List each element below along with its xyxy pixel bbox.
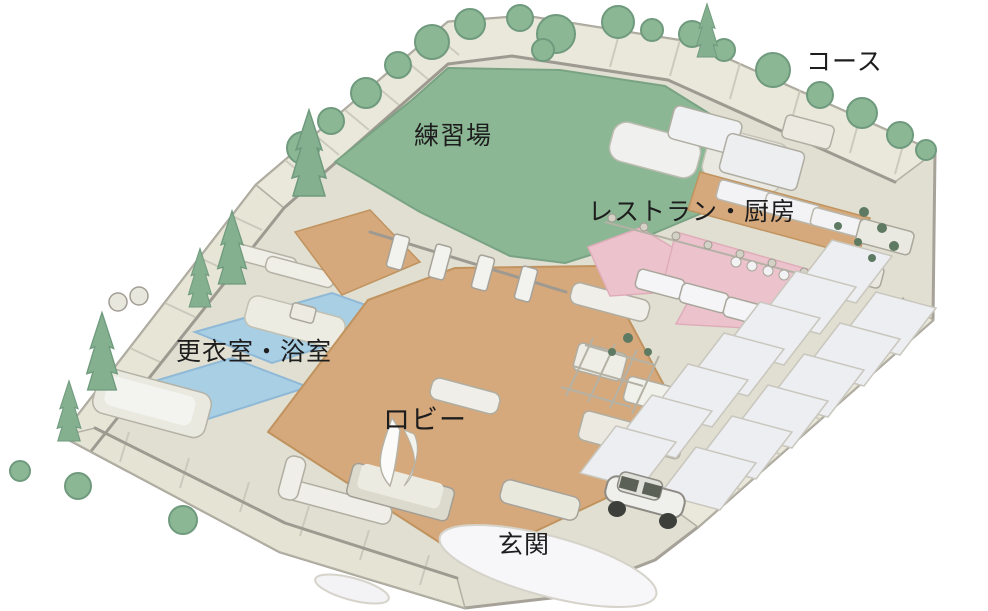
- label-course: コース: [806, 48, 883, 76]
- label-practice-range: 練習場: [414, 122, 492, 150]
- label-lobby: ロビー: [383, 406, 467, 436]
- facility-illustration: [0, 0, 988, 611]
- label-locker-bath: 更衣室・浴室: [176, 338, 332, 366]
- golf-facility-map: コース 練習場 レストラン・厨房 更衣室・浴室 ロビー 玄関: [0, 0, 988, 611]
- label-entrance: 玄関: [498, 531, 550, 559]
- label-restaurant-kitchen: レストラン・厨房: [588, 198, 796, 226]
